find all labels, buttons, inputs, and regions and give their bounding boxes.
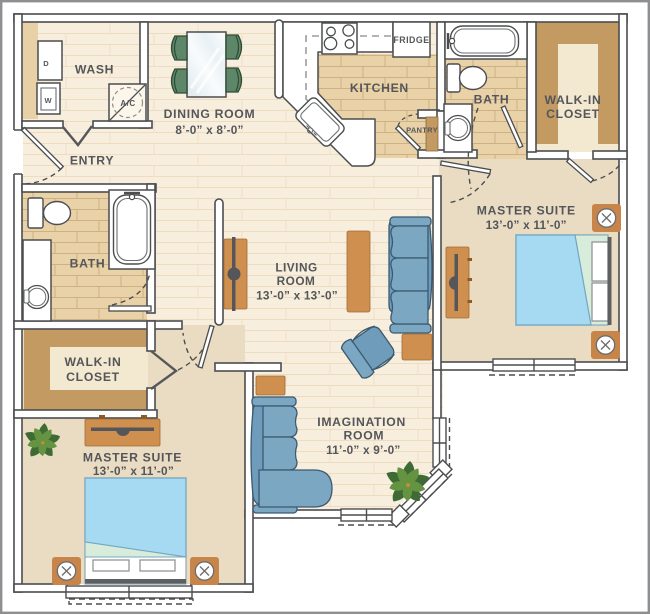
svg-text:13’-0” x 13’-0”: 13’-0” x 13’-0” — [256, 289, 338, 303]
svg-text:A/C: A/C — [120, 99, 135, 108]
svg-text:PANTRY: PANTRY — [406, 126, 438, 135]
svg-text:WALK-IN: WALK-IN — [544, 93, 601, 107]
svg-text:BATH: BATH — [70, 257, 106, 271]
svg-text:8’-0” x 8’-0”: 8’-0” x 8’-0” — [175, 123, 243, 137]
svg-text:MASTER SUITE: MASTER SUITE — [477, 204, 576, 218]
svg-text:13’-0” x 11’-0”: 13’-0” x 11’-0” — [486, 218, 567, 232]
svg-text:IMAGINATION: IMAGINATION — [317, 415, 406, 429]
svg-text:13’-0” x 11’-0”: 13’-0” x 11’-0” — [93, 464, 174, 478]
svg-text:LIVING: LIVING — [275, 260, 317, 274]
svg-text:W: W — [44, 96, 52, 105]
svg-text:DINING ROOM: DINING ROOM — [164, 107, 256, 121]
svg-text:FRIDGE: FRIDGE — [393, 35, 429, 45]
svg-text:KITCHEN: KITCHEN — [350, 81, 409, 95]
svg-text:ROOM: ROOM — [344, 429, 385, 443]
svg-text:CLOSET: CLOSET — [546, 107, 600, 121]
svg-text:CLOSET: CLOSET — [66, 370, 120, 384]
svg-text:ENTRY: ENTRY — [70, 154, 114, 168]
svg-text:WASH: WASH — [75, 63, 114, 77]
svg-text:11’-0” x 9’-0”: 11’-0” x 9’-0” — [326, 443, 400, 457]
svg-text:MASTER SUITE: MASTER SUITE — [83, 451, 182, 465]
svg-text:ROOM: ROOM — [277, 274, 316, 288]
svg-text:BATH: BATH — [474, 93, 510, 107]
svg-text:D: D — [43, 59, 49, 68]
svg-text:WALK-IN: WALK-IN — [64, 355, 121, 369]
